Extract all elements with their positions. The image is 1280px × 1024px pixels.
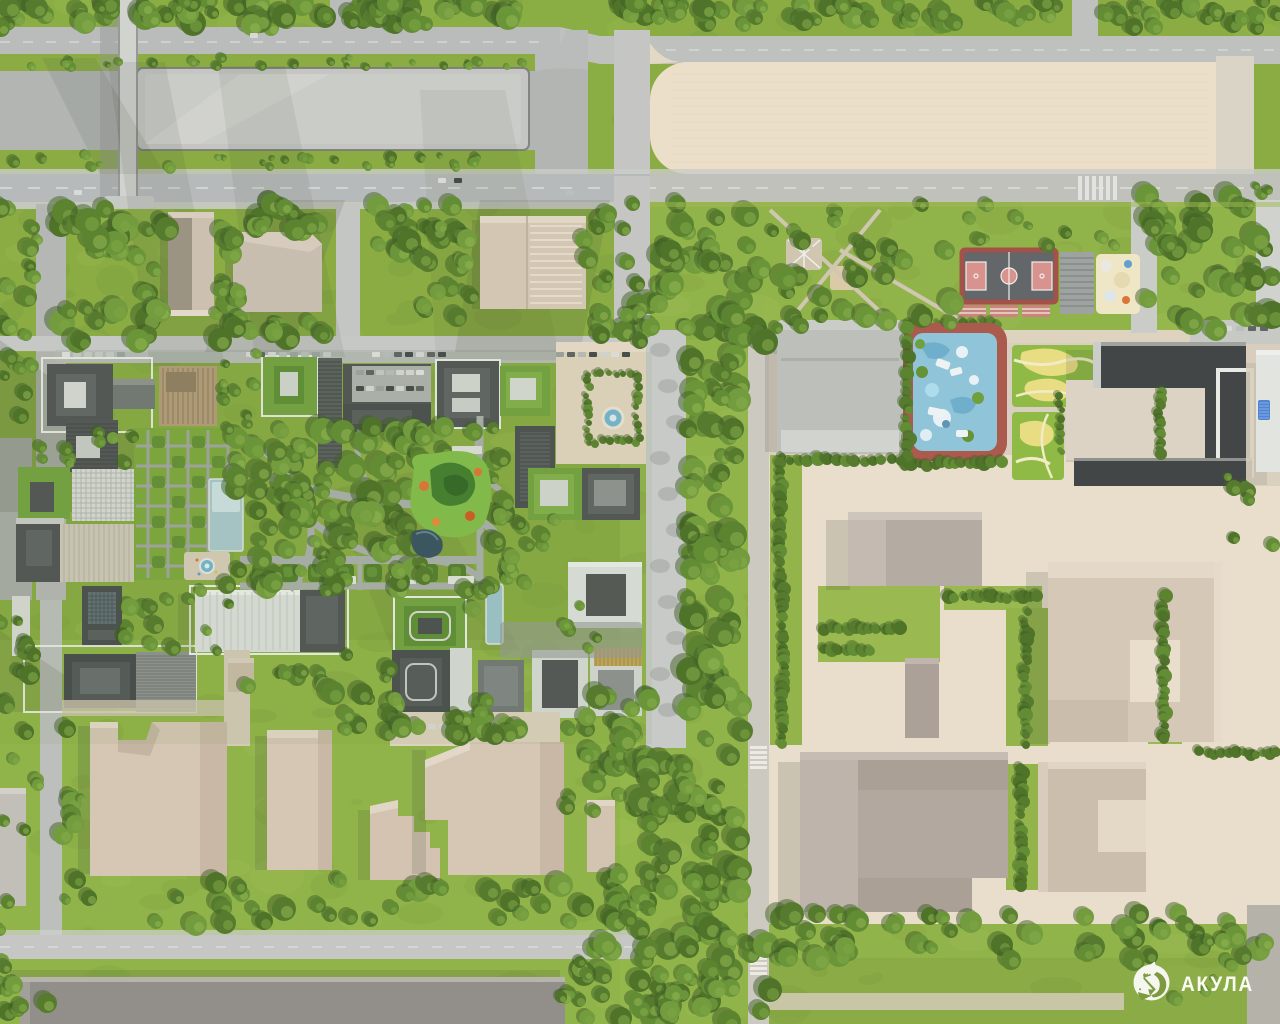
svg-text:АКУЛА: АКУЛА <box>1181 973 1254 996</box>
